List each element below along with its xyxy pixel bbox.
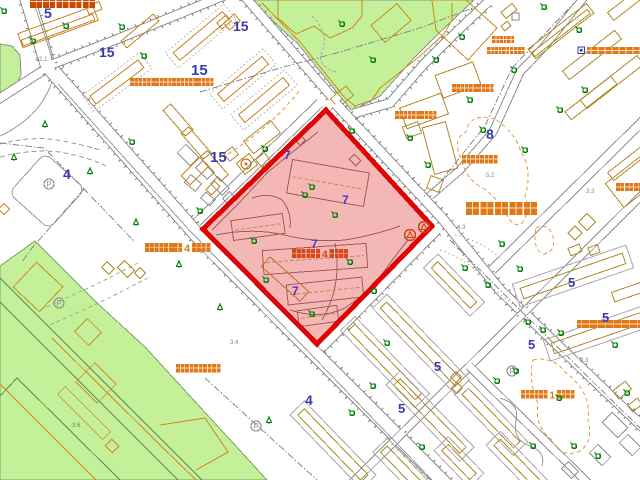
svg-text:7: 7 [342, 193, 349, 207]
svg-text:7: 7 [292, 284, 299, 298]
svg-text:5: 5 [398, 401, 405, 416]
svg-text:5: 5 [528, 337, 535, 352]
svg-text:7: 7 [311, 237, 318, 251]
svg-text:7: 7 [284, 148, 291, 162]
svg-text:5: 5 [44, 5, 52, 21]
svg-text:15: 15 [191, 62, 208, 79]
svg-text:P: P [253, 422, 258, 431]
svg-text:·3.3: ·3.3 [584, 189, 595, 195]
svg-text:·5.2: ·5.2 [484, 173, 495, 179]
svg-text:4: 4 [305, 392, 313, 408]
svg-text:·3.4: ·3.4 [228, 340, 239, 346]
svg-text:5: 5 [434, 359, 441, 374]
svg-text:15: 15 [99, 44, 115, 60]
svg-text:4: 4 [184, 243, 190, 255]
svg-text:P: P [56, 299, 61, 308]
svg-text:4: 4 [63, 166, 71, 182]
svg-text:·3.6: ·3.6 [70, 423, 81, 429]
svg-text:15: 15 [233, 18, 249, 34]
svg-text:·3.3: ·3.3 [578, 358, 589, 364]
svg-text:·4.3: ·4.3 [455, 225, 466, 231]
svg-text:4: 4 [322, 249, 328, 261]
svg-text:8: 8 [486, 126, 494, 142]
svg-text:5: 5 [568, 275, 575, 290]
svg-text:P: P [46, 180, 51, 189]
svg-text:v2.1: v2.1 [36, 57, 48, 63]
svg-text:5: 5 [602, 310, 609, 325]
svg-text:15: 15 [210, 149, 227, 166]
svg-text:1: 1 [549, 391, 555, 402]
